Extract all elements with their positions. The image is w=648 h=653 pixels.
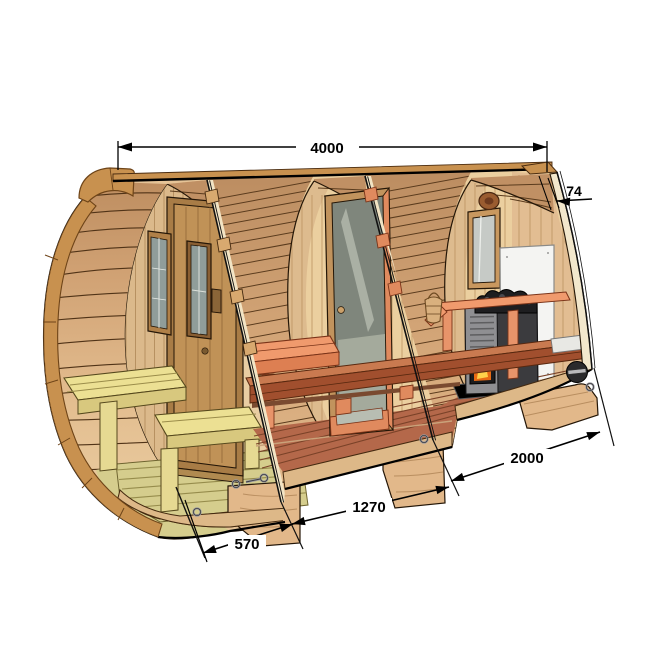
svg-text:570: 570 (234, 536, 259, 553)
svg-text:2000: 2000 (510, 450, 543, 467)
svg-text:4000: 4000 (310, 140, 343, 157)
svg-text:1270: 1270 (352, 499, 385, 516)
svg-text:74: 74 (566, 183, 582, 199)
